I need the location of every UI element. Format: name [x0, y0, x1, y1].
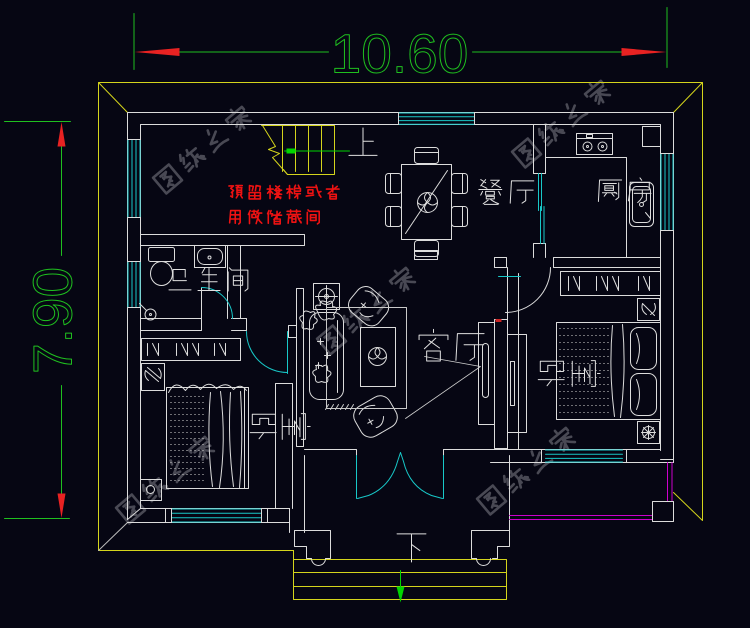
svg-text:10.60: 10.60 — [331, 23, 469, 85]
svg-text:7.90: 7.90 — [22, 267, 84, 374]
